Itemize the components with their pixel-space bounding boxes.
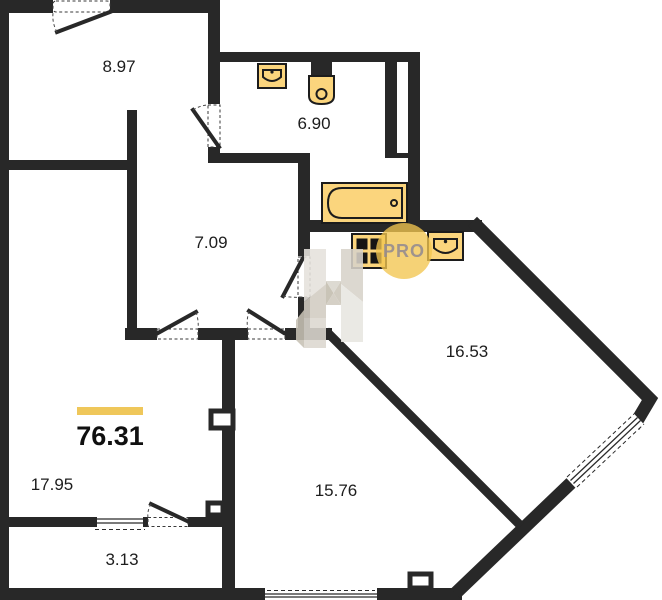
fixtures (258, 62, 463, 268)
room-area-balcony: 3.13 (105, 550, 138, 569)
pro-watermark: PRO (376, 223, 432, 279)
wall (125, 328, 157, 340)
wall (0, 0, 9, 600)
entrance-door-icon (53, 1, 110, 32)
door-leaf (57, 12, 110, 32)
sink-faucet (444, 240, 447, 243)
duct-niche (211, 411, 233, 428)
floor-plan-drawing: PRO 8.97 6.90 7.09 16.53 17.95 15.76 3.1… (0, 0, 662, 600)
wall-diagonal-room-divider (329, 334, 518, 523)
sink-faucet (270, 70, 273, 73)
window-bedroom (265, 588, 377, 600)
room-area-bathroom: 6.90 (297, 114, 330, 133)
window-line (574, 421, 641, 484)
wall (127, 110, 137, 340)
door-swing-arc (193, 105, 208, 110)
column (208, 503, 223, 515)
wall (143, 517, 148, 527)
window-glass (571, 419, 639, 483)
living-room-door-icon (157, 312, 198, 339)
bathroom-sink-icon (258, 64, 286, 88)
room-area-corridor: 7.09 (194, 233, 227, 252)
door-opening (53, 1, 110, 12)
wall (188, 517, 227, 527)
wall (0, 588, 235, 600)
column (410, 574, 431, 588)
logo-facet (296, 310, 304, 348)
window-line (571, 418, 638, 481)
wall (222, 588, 265, 600)
watermark-pro-text: PRO (383, 241, 425, 261)
stove-burner (357, 239, 368, 250)
total-area-accent-bar (77, 407, 143, 415)
wall (7, 517, 97, 527)
wall (7, 160, 127, 170)
logo-facet (304, 318, 326, 348)
door-swing-arc (247, 311, 249, 330)
wall (408, 52, 420, 232)
wall (298, 163, 310, 256)
floor-plan-page: PRO 8.97 6.90 7.09 16.53 17.95 15.76 3.1… (0, 0, 662, 600)
wall (110, 0, 220, 13)
window-living-room (95, 516, 145, 530)
windows (95, 414, 644, 600)
total-area-label: 76.31 (76, 421, 144, 451)
bathroom-door-icon (193, 105, 220, 147)
wall-diagonal-lower-right (460, 481, 573, 589)
wall (0, 0, 53, 13)
window-kitchen-living-diagonal (567, 414, 644, 487)
door-swing-arc (53, 13, 57, 32)
door-swing-arc (196, 312, 198, 330)
toilet-icon (309, 62, 334, 104)
wall-diagonal-upper-right (477, 226, 650, 421)
wall (208, 153, 310, 163)
wall-shaft-left (385, 62, 397, 158)
wall (213, 52, 420, 62)
window-dash (567, 414, 634, 477)
balcony-door-icon (148, 504, 188, 527)
wall (222, 340, 235, 600)
kitchen-sink-icon (428, 232, 463, 260)
wall-shaft-bottom (397, 153, 408, 158)
room-area-kitchen-living: 16.53 (446, 342, 489, 361)
bathtub-icon (322, 183, 407, 223)
door-swing-arc (148, 504, 151, 518)
window-dash (577, 424, 644, 487)
room-area-bedroom: 15.76 (315, 481, 358, 500)
room-area-living-room: 17.95 (31, 475, 74, 494)
room-area-entry-hall: 8.97 (102, 57, 135, 76)
window-glass (97, 516, 143, 528)
total-area-badge: 76.31 (76, 407, 144, 451)
bedroom-door-icon (247, 311, 285, 339)
wall (198, 328, 248, 340)
